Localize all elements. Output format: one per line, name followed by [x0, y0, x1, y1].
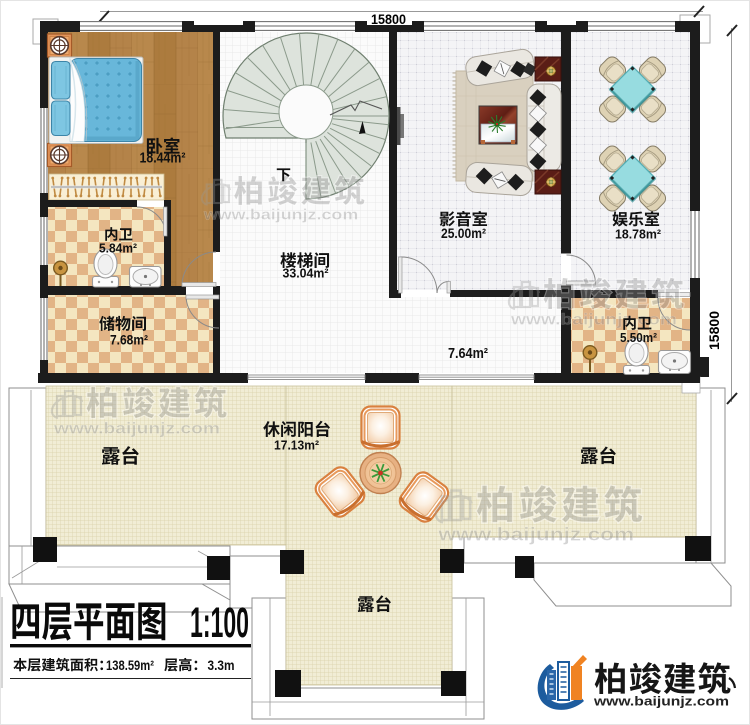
svg-text:18.78m²: 18.78m²: [615, 227, 662, 242]
svg-text:33.04m²: 33.04m²: [283, 266, 330, 281]
svg-text:1:100: 1:100: [190, 599, 249, 647]
svg-text:3.3m: 3.3m: [208, 657, 235, 673]
svg-text:5.84m²: 5.84m²: [99, 241, 138, 256]
svg-text:www.baijunjz.com: www.baijunjz.com: [593, 694, 729, 709]
svg-text:17.13m²: 17.13m²: [274, 438, 320, 453]
svg-text:25.00m²: 25.00m²: [441, 226, 486, 241]
svg-text:138.59m²: 138.59m²: [106, 657, 154, 673]
svg-text:15800: 15800: [371, 11, 406, 27]
svg-text:5.50m²: 5.50m²: [620, 330, 658, 345]
svg-text:15800: 15800: [706, 311, 722, 350]
svg-text:18.44m²: 18.44m²: [140, 151, 186, 167]
svg-text:7.64m²: 7.64m²: [448, 346, 488, 362]
svg-text:7.68m²: 7.68m²: [110, 333, 148, 348]
